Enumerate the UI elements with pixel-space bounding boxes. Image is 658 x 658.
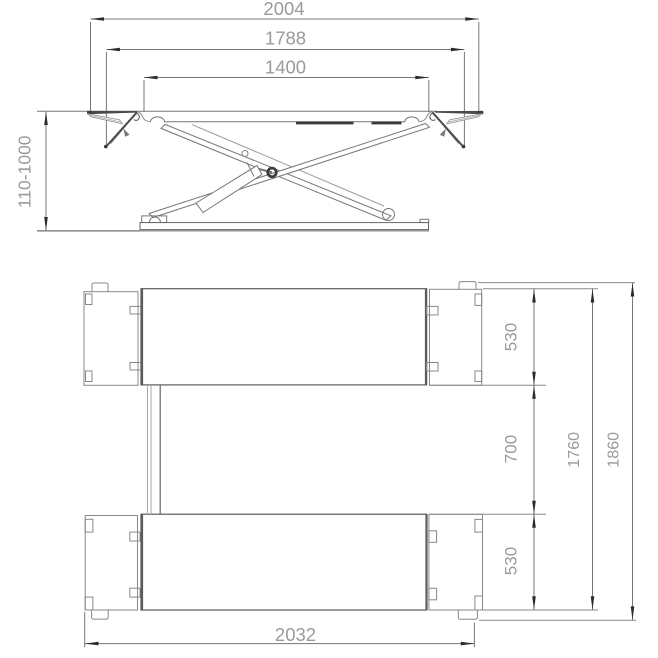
svg-text:1788: 1788	[265, 28, 306, 49]
svg-text:2032: 2032	[275, 624, 316, 645]
svg-text:530: 530	[502, 323, 521, 351]
svg-text:1860: 1860	[606, 432, 623, 468]
svg-text:700: 700	[502, 435, 521, 463]
svg-text:2004: 2004	[263, 0, 304, 19]
svg-text:530: 530	[502, 547, 521, 575]
svg-text:1760: 1760	[566, 432, 583, 468]
svg-text:110-1000: 110-1000	[15, 135, 35, 208]
svg-text:1400: 1400	[265, 57, 306, 78]
